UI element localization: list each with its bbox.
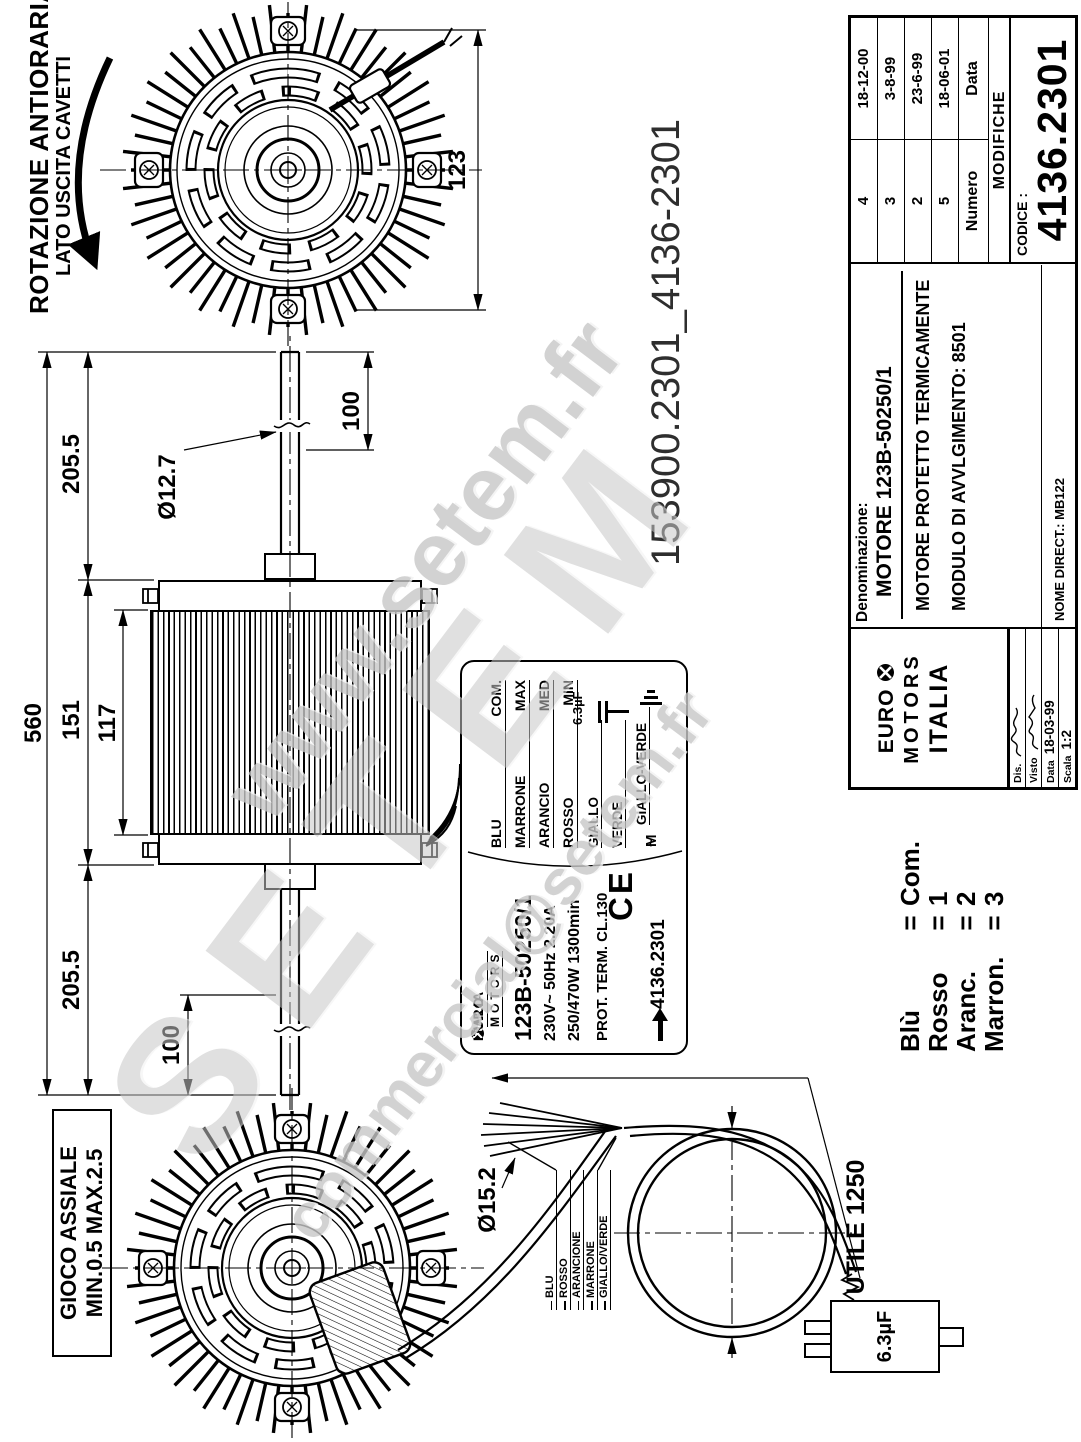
nameplate-code: 4136.2301 <box>648 919 670 1009</box>
ce-mark: CE <box>602 869 640 921</box>
wire-callout: BLU <box>544 1170 557 1310</box>
wire-callout: ROSSO <box>557 1170 570 1310</box>
rotation-arrow-icon <box>78 58 110 262</box>
ground-symbol-icon <box>640 702 662 705</box>
dim-stack-length: 117 <box>94 691 122 755</box>
legend-row: Aranc.=2 <box>952 841 980 1052</box>
rotation-note-line2: LATO USCITA CAVETTI <box>53 18 76 314</box>
dim-shaft-end-right: 100 <box>338 376 366 446</box>
legend-row: Marron.=3 <box>980 841 1008 1052</box>
drawing-sheet: ROTAZIONE ANTIORARIA LATO USCITA CAVETTI… <box>0 0 1081 1442</box>
capacitor-value-label: 6.3µF <box>570 691 585 725</box>
field-visto: Visto <box>1025 629 1041 787</box>
arrow-icon <box>652 1008 668 1021</box>
nameplate-electrical: 230V~ 50Hz 2.20A <box>542 905 560 1041</box>
signature-scribble <box>1026 692 1040 752</box>
field-data: Data18-03-99 <box>1041 629 1058 787</box>
dim-shaft-diameter: Ø12.7 <box>154 437 182 537</box>
revision-table: 418-12-00 33-8-99 223-6-99 518-06-01 Num… <box>851 18 1075 262</box>
leader-tick-icon <box>591 1301 593 1310</box>
nome-direct: NOME DIRECT.: MB122 <box>1041 265 1078 627</box>
wire-legend: Blù=Com. Rosso=1 Aranc.=2 Marron.=3 <box>896 841 1008 1052</box>
rotation-note-line1: ROTAZIONE ANTIORARIA <box>24 18 55 314</box>
wire-row: BLUCOM. <box>482 680 506 848</box>
codice-box: CODICE : 4136.2301 <box>1011 18 1075 262</box>
company-logo: EURO MOTORS ITALIA <box>851 629 1009 787</box>
ground-symbol-icon <box>647 690 655 693</box>
dim-shaft-end-left: 100 <box>158 1015 186 1075</box>
leader-tick-icon <box>564 1301 566 1310</box>
denomination-model: MOTORE 123B-50250/1 <box>873 366 897 597</box>
nameplate-brand-motors: MOTORS <box>487 951 503 1027</box>
wire-callout: MARRONE <box>584 1170 597 1310</box>
wire-callout: GIALLO/VERDE <box>598 1170 611 1310</box>
wire-verde: VERDE <box>610 720 626 848</box>
ground-symbol-icon <box>644 696 658 699</box>
modifiche-label: MODIFICHE <box>989 18 1011 262</box>
wire-giallo: GIALLO <box>586 720 602 848</box>
legend-row: Blù=Com. <box>896 841 924 1052</box>
capacitor-terminal <box>804 1343 832 1358</box>
wire-color-callouts: BLU ROSSO ARANCIONE MARRONE GIALLO/VERDE <box>544 1170 611 1310</box>
nameplate-power: 250/470W 1300min <box>566 900 584 1041</box>
capacitor-lead-icon <box>608 710 629 713</box>
capacitor-symbol-icon <box>598 701 601 723</box>
wire-row: ARANCIOMED <box>530 680 554 848</box>
field-dis: Dis. <box>1009 629 1025 787</box>
axial-play-line1: GIOCO ASSIALE <box>56 1113 82 1353</box>
title-block-logo-column: EURO MOTORS ITALIA Dis. Visto Data18-03-… <box>851 627 1075 787</box>
leader-tick-icon <box>551 1301 553 1310</box>
dim-overall-length: 560 <box>20 688 48 758</box>
dim-shaft-right: 205.5 <box>58 422 86 506</box>
leader-tick-icon <box>578 1301 580 1310</box>
motor-nameplate: EURO ITALIA MOTORS 123B-50250/1 230V~ 50… <box>460 660 688 1055</box>
dim-shaft-left: 205.5 <box>58 938 86 1022</box>
revision-row: 33-8-99 <box>878 18 905 262</box>
revision-row: 518-06-01 <box>932 18 959 262</box>
codice-value: 4136.2301 <box>1029 18 1076 262</box>
leader-tick-icon <box>604 1301 606 1310</box>
nameplate-model: 123B-50250/1 <box>510 895 537 1041</box>
capacitor-stub <box>938 1327 964 1347</box>
dim-cable-diameter: Ø15.2 <box>474 1154 502 1246</box>
title-block: EURO MOTORS ITALIA Dis. Visto Data18-03-… <box>848 15 1078 790</box>
rule <box>901 271 903 619</box>
legend-row: Rosso=1 <box>924 841 952 1052</box>
denomination-box: Denominazione: MOTORE 123B-50250/1 MOTOR… <box>851 262 1075 627</box>
dim-body-length: 151 <box>58 688 86 752</box>
dim-fan-width: 123 <box>444 135 472 205</box>
revision-row: 418-12-00 <box>851 18 878 262</box>
signature-scribble <box>1010 698 1024 758</box>
wire-callout: ARANCIONE <box>571 1170 584 1310</box>
wire-giallo-verde: GIALLO-VERDE <box>634 707 650 825</box>
axial-play-line2: MIN.0.5 MAX.2.5 <box>82 1113 108 1353</box>
file-reference: 153900.2301_4136-2301 <box>644 86 689 566</box>
wire-row: MARRONEMAX <box>506 680 530 848</box>
revision-header: NumeroData <box>959 18 989 262</box>
dim-cable-length: UTILE 1250 <box>842 1148 871 1306</box>
revision-row: 223-6-99 <box>905 18 932 262</box>
capacitor-box: 6.3µF <box>830 1300 940 1373</box>
capacitor-value: 6.3µF <box>874 1311 897 1363</box>
capacitor-terminal <box>804 1320 832 1335</box>
axial-play-note: GIOCO ASSIALE MIN.0.5 MAX.2.5 <box>52 1109 112 1357</box>
technical-drawing-canvas: ROTAZIONE ANTIORARIA LATO USCITA CAVETTI… <box>0 0 1081 1442</box>
arrow-icon <box>658 1019 663 1041</box>
field-scala: Scala1:2 <box>1058 629 1075 787</box>
fan-logo-icon <box>876 663 895 682</box>
